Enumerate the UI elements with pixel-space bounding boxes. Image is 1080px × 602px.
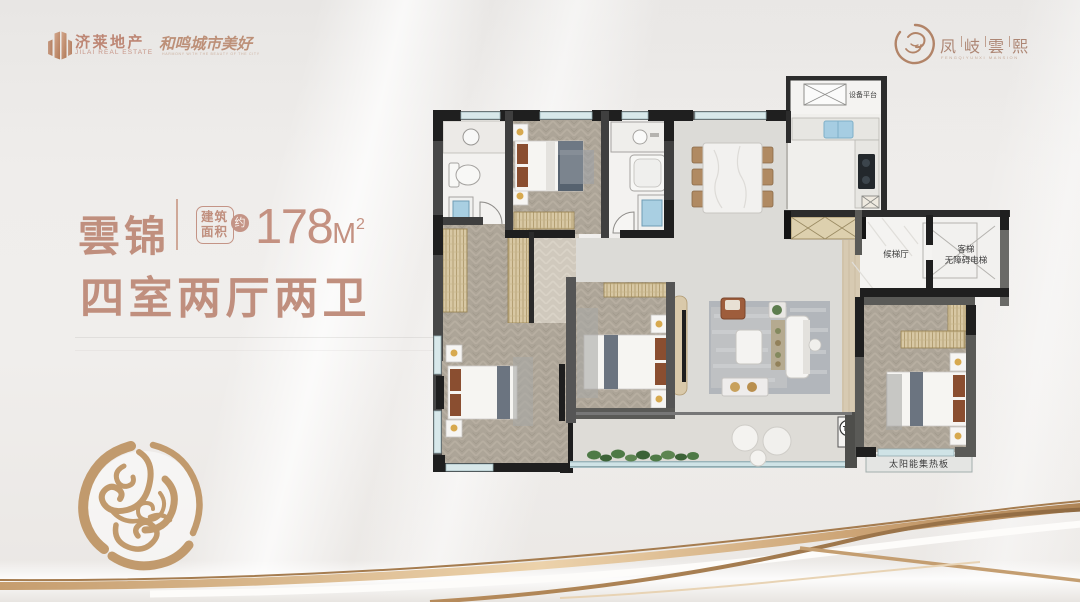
svg-text:无障碍电梯: 无障碍电梯 <box>945 255 988 265</box>
svg-text:太阳能集热板: 太阳能集热板 <box>889 458 949 469</box>
svg-text:客梯: 客梯 <box>957 244 975 254</box>
svg-text:候梯厅: 候梯厅 <box>883 249 909 259</box>
svg-text:设备平台: 设备平台 <box>849 90 877 99</box>
